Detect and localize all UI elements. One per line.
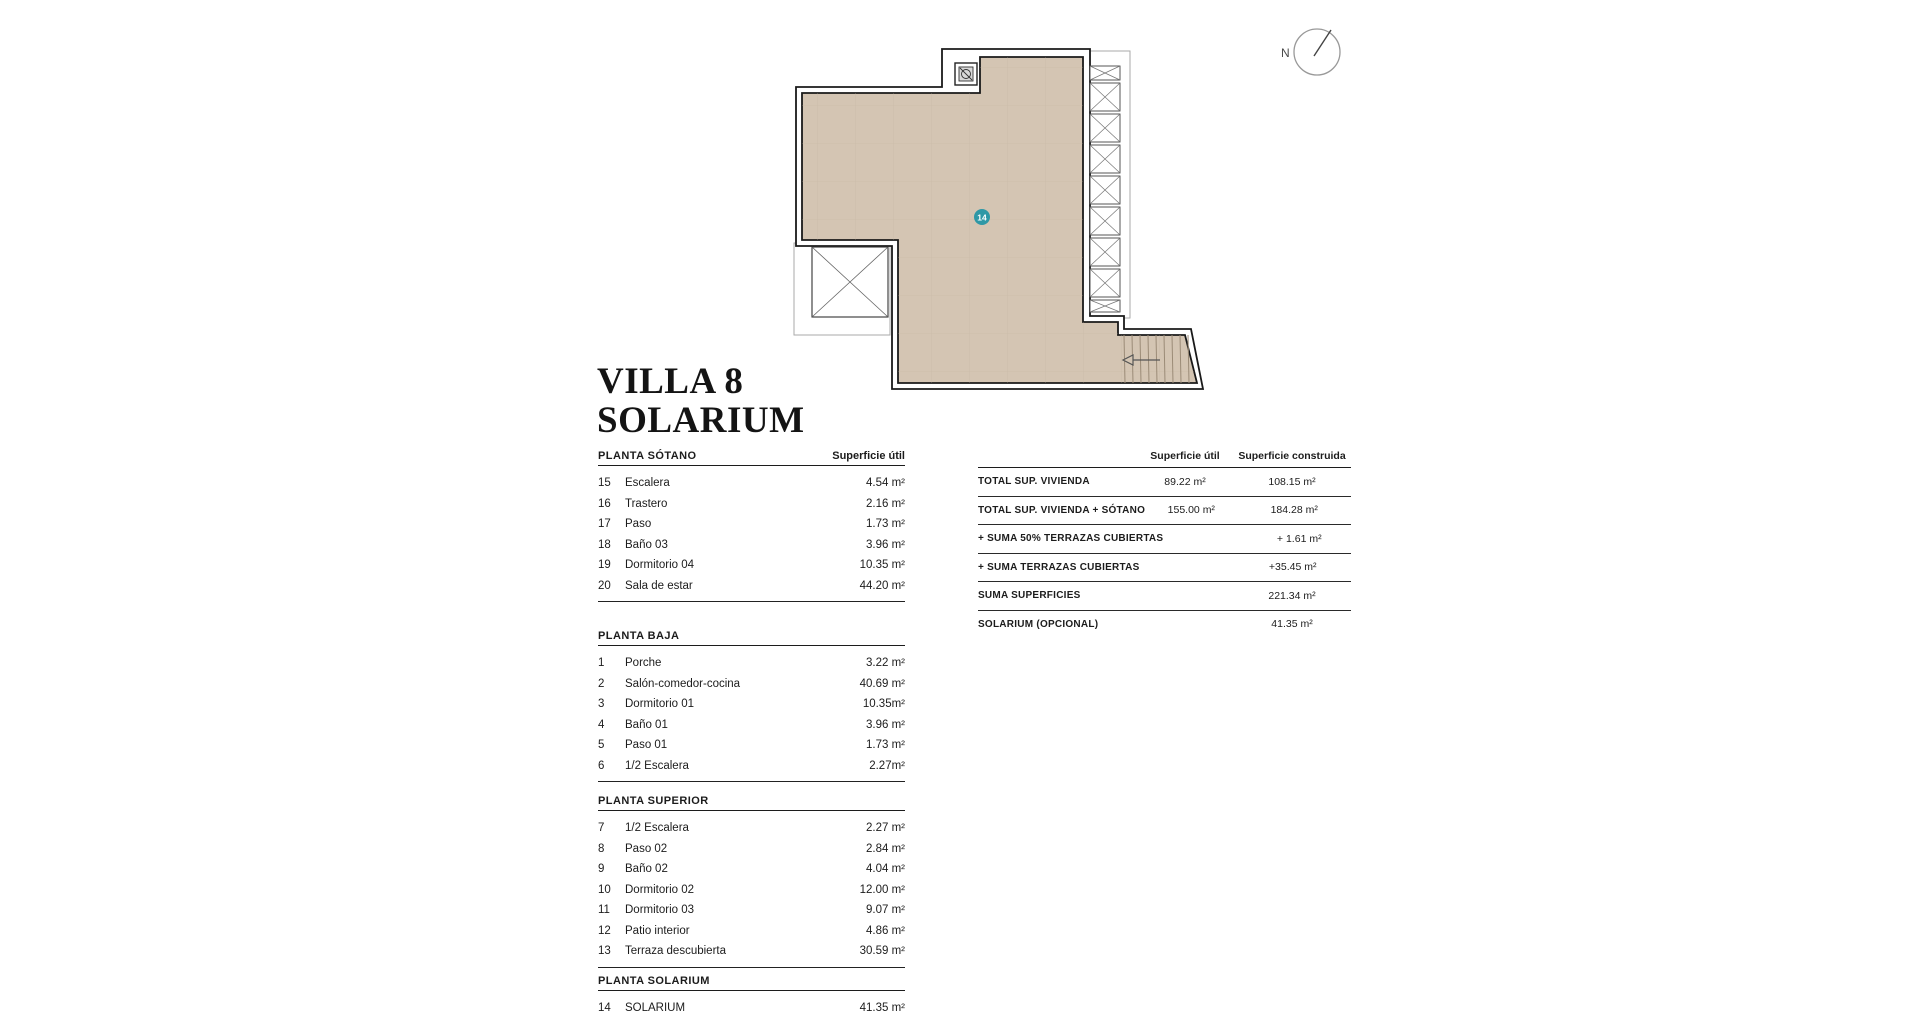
louver-panel	[1090, 66, 1120, 312]
room-area-value: 30.59 m²	[860, 945, 905, 957]
room-number: 4	[598, 719, 625, 731]
room-number: 6	[598, 760, 625, 772]
room-name: Baño 02	[625, 863, 866, 875]
floor-section: PLANTA BAJA1Porche3.22 m²2Salón-comedor-…	[598, 630, 905, 782]
room-name: Sala de estar	[625, 580, 860, 592]
room-name: Baño 01	[625, 719, 866, 731]
summary-construida-value: 184.28 m²	[1237, 504, 1351, 516]
summary-row: + SUMA 50% TERRAZAS CUBIERTAS+ 1.61 m²	[978, 525, 1351, 554]
floor-section-header: PLANTA BAJA	[598, 630, 905, 646]
summary-col-header-construida: Superficie construida	[1233, 450, 1351, 462]
room-badge-number: 14	[977, 213, 987, 223]
floor-section-rows: 15Escalera4.54 m²16Trastero2.16 m²17Paso…	[598, 466, 905, 596]
room-row: 71/2 Escalera2.27 m²	[598, 818, 905, 839]
floor-section-title: PLANTA BAJA	[598, 630, 679, 642]
summary-util-value: 155.00 m²	[1145, 504, 1237, 516]
room-number: 1	[598, 657, 625, 669]
floor-section-rows: 14SOLARIUM41.35 m²	[598, 991, 905, 1019]
floor-section-title: PLANTA SÓTANO	[598, 450, 697, 462]
room-area-value: 9.07 m²	[866, 904, 905, 916]
room-areas-table: PLANTA SÓTANOSuperficie útil15Escalera4.…	[598, 450, 905, 1024]
room-area-value: 40.69 m²	[860, 678, 905, 690]
room-number: 5	[598, 739, 625, 751]
room-area-value: 10.35m²	[863, 698, 905, 710]
room-number: 9	[598, 863, 625, 875]
summary-label: + SUMA 50% TERRAZAS CUBIERTAS	[978, 533, 1163, 544]
room-name: Terraza descubierta	[625, 945, 860, 957]
room-area-value: 1.73 m²	[866, 518, 905, 530]
page-title: VILLA 8 SOLARIUM	[597, 362, 805, 440]
floor-plan: 14	[780, 30, 1220, 400]
summary-construida-value: 108.15 m²	[1233, 476, 1351, 488]
room-row: 3Dormitorio 0110.35m²	[598, 694, 905, 715]
room-number: 20	[598, 580, 625, 592]
room-name: Dormitorio 04	[625, 559, 860, 571]
section-divider	[598, 967, 905, 968]
section-divider	[598, 781, 905, 782]
floor-section: PLANTA SÓTANOSuperficie útil15Escalera4.…	[598, 450, 905, 602]
void-cross	[812, 247, 888, 317]
room-name: Dormitorio 02	[625, 884, 860, 896]
floor-section-title: PLANTA SOLARIUM	[598, 975, 710, 987]
room-area-value: 44.20 m²	[860, 580, 905, 592]
room-number: 15	[598, 477, 625, 489]
room-number: 13	[598, 945, 625, 957]
room-row: 15Escalera4.54 m²	[598, 473, 905, 494]
room-name: Patio interior	[625, 925, 866, 937]
summary-construida-value: 41.35 m²	[1233, 618, 1351, 630]
summary-label: + SUMA TERRAZAS CUBIERTAS	[978, 562, 1140, 573]
summary-label: SOLARIUM (OPCIONAL)	[978, 619, 1137, 630]
room-number: 11	[598, 904, 625, 916]
summary-construida-value: + 1.61 m²	[1248, 533, 1351, 545]
room-row: 2Salón-comedor-cocina40.69 m²	[598, 674, 905, 695]
floor-section: PLANTA SUPERIOR71/2 Escalera2.27 m²8Paso…	[598, 795, 905, 968]
room-number: 10	[598, 884, 625, 896]
room-number: 18	[598, 539, 625, 551]
room-area-value: 2.84 m²	[866, 843, 905, 855]
room-row: 61/2 Escalera2.27m²	[598, 756, 905, 777]
room-name: Dormitorio 01	[625, 698, 863, 710]
room-name: Baño 03	[625, 539, 866, 551]
room-name: Dormitorio 03	[625, 904, 866, 916]
compass: N	[1270, 18, 1370, 96]
room-number: 16	[598, 498, 625, 510]
floor-section-rows: 71/2 Escalera2.27 m²8Paso 022.84 m²9Baño…	[598, 811, 905, 962]
room-row: 13Terraza descubierta30.59 m²	[598, 941, 905, 962]
compass-needle	[1314, 30, 1331, 56]
summary-header-row: Superficie útilSuperficie construida	[978, 450, 1351, 468]
room-number: 7	[598, 822, 625, 834]
room-area-value: 2.27 m²	[866, 822, 905, 834]
summary-row: SOLARIUM (OPCIONAL)41.35 m²	[978, 611, 1351, 639]
room-area-value: 4.54 m²	[866, 477, 905, 489]
compass-north-label: N	[1281, 46, 1290, 60]
room-name: SOLARIUM	[625, 1002, 860, 1014]
room-row: 11Dormitorio 039.07 m²	[598, 900, 905, 921]
room-number: 2	[598, 678, 625, 690]
room-name: Trastero	[625, 498, 866, 510]
room-name: Escalera	[625, 477, 866, 489]
summary-construida-value: 221.34 m²	[1233, 590, 1351, 602]
room-row: 8Paso 022.84 m²	[598, 839, 905, 860]
skylight-icon	[955, 63, 977, 85]
room-number: 3	[598, 698, 625, 710]
floor-section-header: PLANTA SUPERIOR	[598, 795, 905, 811]
floor-section-header: PLANTA SOLARIUM	[598, 975, 905, 991]
summary-row: TOTAL SUP. VIVIENDA89.22 m²108.15 m²	[978, 468, 1351, 497]
page-title-line2: SOLARIUM	[597, 401, 805, 440]
room-number: 12	[598, 925, 625, 937]
section-divider	[598, 601, 905, 602]
floor-section-title: PLANTA SUPERIOR	[598, 795, 709, 807]
room-row: 9Baño 024.04 m²	[598, 859, 905, 880]
room-name: 1/2 Escalera	[625, 822, 866, 834]
room-name: Paso	[625, 518, 866, 530]
room-area-value: 12.00 m²	[860, 884, 905, 896]
surface-summary-table: Superficie útilSuperficie construidaTOTA…	[978, 450, 1351, 638]
room-area-value: 4.04 m²	[866, 863, 905, 875]
floor-section-header: PLANTA SÓTANOSuperficie útil	[598, 450, 905, 466]
room-name: Porche	[625, 657, 866, 669]
summary-row: + SUMA TERRAZAS CUBIERTAS+35.45 m²	[978, 554, 1351, 583]
room-number: 14	[598, 1002, 625, 1014]
page-title-line1: VILLA 8	[597, 362, 805, 401]
summary-util-value: 89.22 m²	[1137, 476, 1233, 488]
summary-label: TOTAL SUP. VIVIENDA + SÓTANO	[978, 505, 1145, 516]
room-name: 1/2 Escalera	[625, 760, 869, 772]
room-area-value: 3.96 m²	[866, 719, 905, 731]
room-row: 18Baño 033.96 m²	[598, 535, 905, 556]
room-area-value: 2.16 m²	[866, 498, 905, 510]
room-row: 14SOLARIUM41.35 m²	[598, 998, 905, 1019]
summary-col-header-util: Superficie útil	[1137, 450, 1233, 462]
room-area-value: 41.35 m²	[860, 1002, 905, 1014]
room-area-value: 3.22 m²	[866, 657, 905, 669]
room-area-value: 3.96 m²	[866, 539, 905, 551]
room-row: 20Sala de estar44.20 m²	[598, 576, 905, 597]
room-name: Paso 01	[625, 739, 866, 751]
summary-label: TOTAL SUP. VIVIENDA	[978, 476, 1137, 487]
room-badge: 14	[974, 209, 990, 225]
room-row: 12Patio interior4.86 m²	[598, 921, 905, 942]
superficie-util-header: Superficie útil	[832, 450, 905, 462]
room-name: Paso 02	[625, 843, 866, 855]
room-row: 5Paso 011.73 m²	[598, 735, 905, 756]
room-row: 1Porche3.22 m²	[598, 653, 905, 674]
summary-row: SUMA SUPERFICIES221.34 m²	[978, 582, 1351, 611]
room-row: 10Dormitorio 0212.00 m²	[598, 880, 905, 901]
room-row: 17Paso1.73 m²	[598, 514, 905, 535]
room-area-value: 4.86 m²	[866, 925, 905, 937]
floor-section-rows: 1Porche3.22 m²2Salón-comedor-cocina40.69…	[598, 646, 905, 776]
room-area-value: 10.35 m²	[860, 559, 905, 571]
summary-row: TOTAL SUP. VIVIENDA + SÓTANO155.00 m²184…	[978, 497, 1351, 526]
summary-label: SUMA SUPERFICIES	[978, 590, 1137, 601]
room-number: 19	[598, 559, 625, 571]
floor-section: PLANTA SOLARIUM14SOLARIUM41.35 m²	[598, 975, 905, 1019]
room-name: Salón-comedor-cocina	[625, 678, 860, 690]
room-row: 4Baño 013.96 m²	[598, 715, 905, 736]
room-number: 17	[598, 518, 625, 530]
room-row: 16Trastero2.16 m²	[598, 494, 905, 515]
room-row: 19Dormitorio 0410.35 m²	[598, 555, 905, 576]
room-number: 8	[598, 843, 625, 855]
room-area-value: 2.27m²	[869, 760, 905, 772]
summary-construida-value: +35.45 m²	[1234, 561, 1351, 573]
room-area-value: 1.73 m²	[866, 739, 905, 751]
